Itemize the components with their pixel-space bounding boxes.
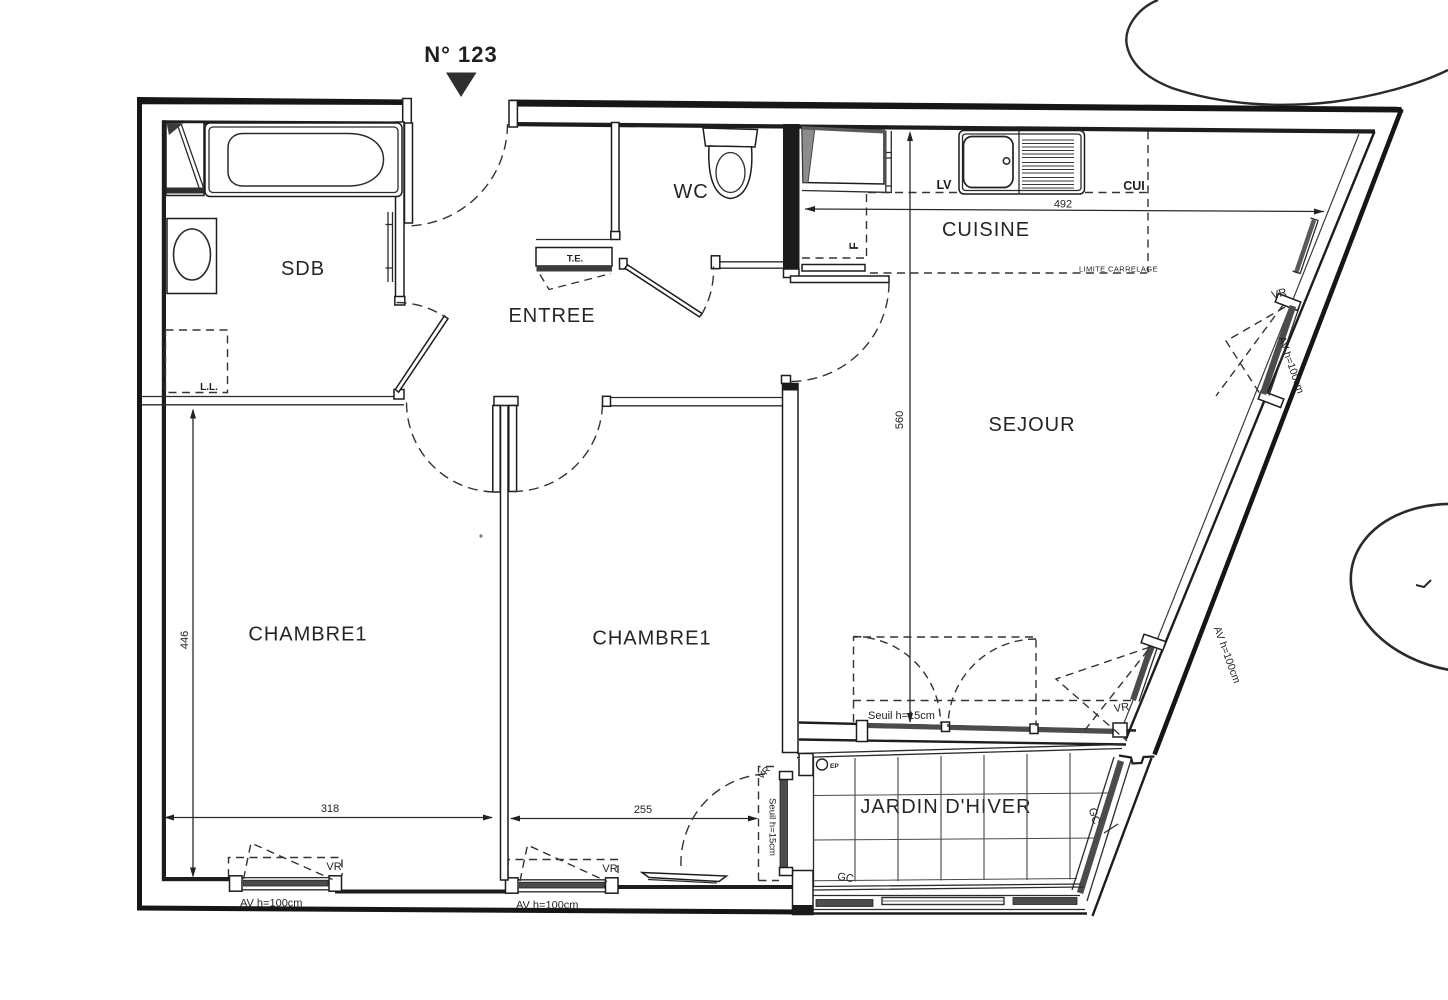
svg-text:ENTREE: ENTREE — [508, 305, 595, 327]
svg-text:AV h=100cm: AV h=100cm — [516, 900, 578, 912]
svg-text:Seuil h=15cm: Seuil h=15cm — [767, 798, 778, 856]
svg-text:SEJOUR: SEJOUR — [988, 414, 1075, 436]
svg-text:EP: EP — [830, 763, 839, 770]
svg-text:F: F — [847, 242, 861, 249]
svg-text:SDB: SDB — [281, 258, 325, 280]
svg-text:CHAMBRE1: CHAMBRE1 — [592, 628, 711, 650]
svg-text:AV h=100cm: AV h=100cm — [240, 898, 302, 910]
svg-text:N° 123: N° 123 — [424, 42, 498, 67]
svg-text:WC: WC — [673, 181, 708, 203]
svg-text:VR: VR — [1113, 701, 1130, 715]
svg-text:Seuil h=15cm: Seuil h=15cm — [868, 710, 935, 722]
svg-text:VR: VR — [602, 863, 617, 875]
svg-text:CUISINE: CUISINE — [942, 219, 1030, 241]
svg-text:LIMITE CARRELAGE: LIMITE CARRELAGE — [1079, 265, 1158, 274]
svg-text:JARDIN D'HIVER: JARDIN D'HIVER — [860, 796, 1031, 818]
svg-text:560: 560 — [894, 411, 906, 429]
svg-text:255: 255 — [634, 804, 652, 816]
svg-text:L.L.: L.L. — [200, 382, 218, 393]
svg-text:T.E.: T.E. — [567, 254, 583, 265]
svg-text:VR: VR — [326, 861, 341, 873]
svg-text:492: 492 — [1054, 199, 1072, 211]
svg-text:318: 318 — [321, 803, 339, 815]
svg-text:LV: LV — [936, 178, 952, 192]
svg-text:CUI: CUI — [1123, 179, 1145, 193]
svg-text:446: 446 — [179, 631, 191, 649]
svg-text:CHAMBRE1: CHAMBRE1 — [248, 624, 367, 646]
